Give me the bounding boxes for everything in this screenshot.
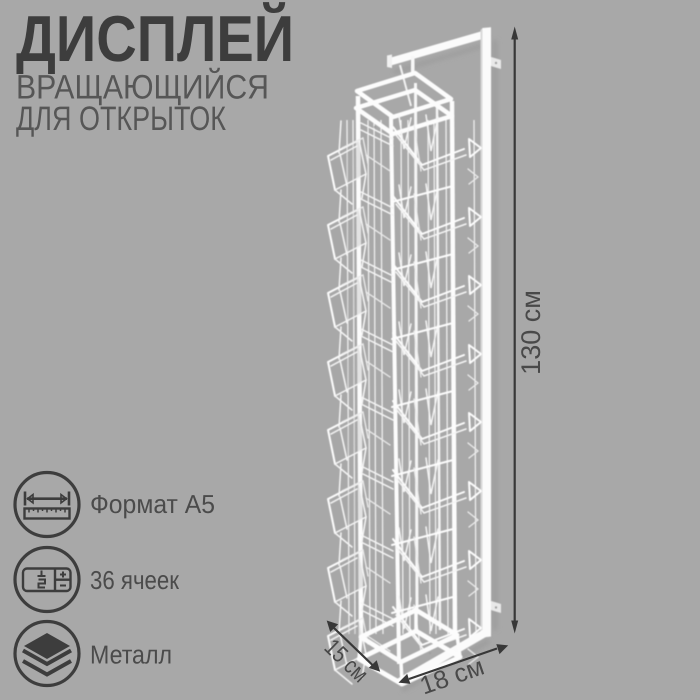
svg-text:ДИСПЛЕЙ: ДИСПЛЕЙ [16, 2, 294, 75]
svg-text:Металл: Металл [90, 640, 172, 670]
svg-text:ДЛЯ ОТКРЫТОК: ДЛЯ ОТКРЫТОК [16, 100, 226, 138]
svg-text:Формат А5: Формат А5 [90, 489, 215, 519]
svg-text:36 ячеек: 36 ячеек [90, 565, 180, 595]
svg-text:130 см: 130 см [516, 290, 546, 375]
